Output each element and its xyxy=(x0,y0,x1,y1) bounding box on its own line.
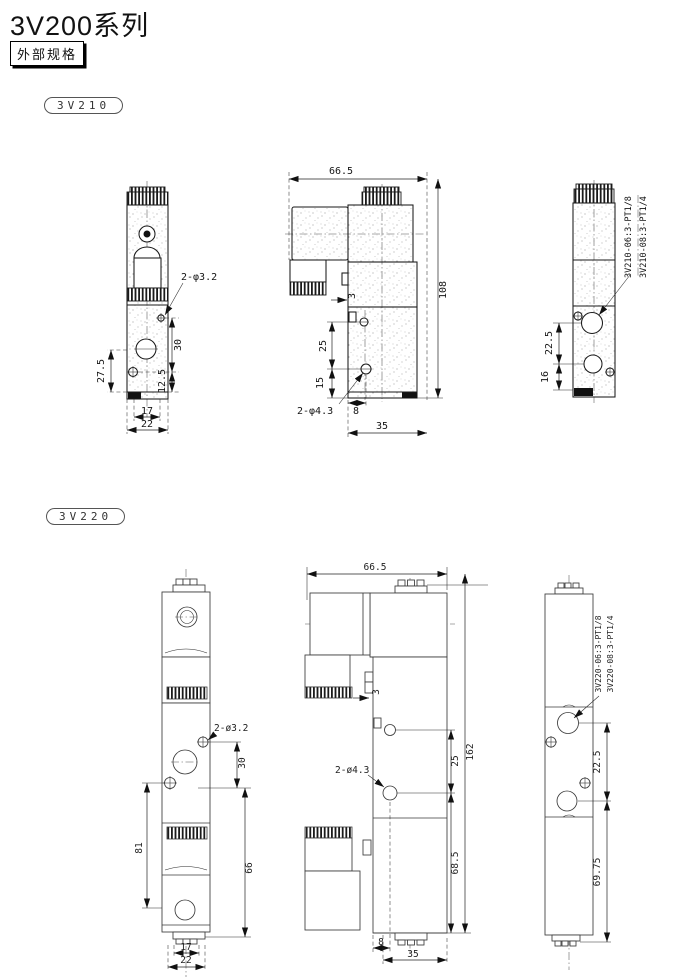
dim-66: 66 xyxy=(244,862,255,874)
dim-68-5: 68.5 xyxy=(450,852,461,875)
dim-35: 35 xyxy=(376,421,388,432)
dim-3: 3 xyxy=(371,689,382,695)
dim-25: 25 xyxy=(318,340,329,352)
dim-66-5: 66.5 xyxy=(364,562,387,573)
v220-back-view: 3V220-06:3-PT1/8 3V220-08:3-PT1/4 22.5 6… xyxy=(535,570,645,975)
port-spec-label-1: 3V210-06:3-PT1/8 xyxy=(624,196,634,278)
dim-8: 8 xyxy=(353,406,359,417)
dim-35: 35 xyxy=(407,949,418,960)
port-spec-label-2: 3V220-08:3-PT1/4 xyxy=(606,615,615,692)
dim-22: 22 xyxy=(180,955,191,966)
dim-66-5: 66.5 xyxy=(329,166,353,177)
v210-front-view: 2-φ3.2 30 12.5 27.5 17 22 xyxy=(95,175,230,440)
valve-outline xyxy=(162,569,210,977)
dim-16: 16 xyxy=(540,371,551,383)
valve-outline xyxy=(545,575,593,970)
hole-dim-label: 2-φ3.2 xyxy=(181,272,217,283)
dim-17: 17 xyxy=(141,406,153,417)
dim-108: 108 xyxy=(438,281,449,299)
section-label: 外部规格 xyxy=(10,41,84,66)
page-title: 3V200系列 xyxy=(10,4,149,43)
dim-25: 25 xyxy=(450,755,461,766)
port-spec-label-2: 3V210-08:3-PT1/4 xyxy=(639,196,649,278)
dim-22-5: 22.5 xyxy=(592,751,603,774)
dim-30: 30 xyxy=(173,339,184,351)
dim-162: 162 xyxy=(465,743,476,760)
v220-side-view: 66.5 3 25 68.5 162 2-ø4.3 8 35 xyxy=(295,560,490,979)
hole-dim-label: 2-φ4.3 xyxy=(297,406,333,417)
v210-side-view: 66.5 108 3 25 15 2-φ4.3 8 35 xyxy=(275,150,455,445)
dim-22-5: 22.5 xyxy=(544,331,555,355)
hole-dim-label: 2-ø3.2 xyxy=(214,723,248,734)
hole-dim-label: 2-ø4.3 xyxy=(335,765,369,776)
dim-3: 3 xyxy=(347,293,358,299)
dim-17: 17 xyxy=(180,942,191,953)
dim-12-5: 12.5 xyxy=(157,369,168,393)
dim-81: 81 xyxy=(134,842,145,854)
dim-27-5: 27.5 xyxy=(96,359,107,383)
valve-outline xyxy=(573,180,615,403)
dim-22: 22 xyxy=(141,419,153,430)
dim-15: 15 xyxy=(315,377,326,389)
dim-69-75: 69.75 xyxy=(592,858,603,887)
v220-front-view: 2-ø3.2 30 81 66 17 22 xyxy=(135,565,260,979)
model-badge-3v210: 3V210 xyxy=(44,97,123,114)
port-spec-label-1: 3V220-06:3-PT1/8 xyxy=(594,615,603,692)
catalog-page: 3V200系列 外部规格 3V210 3V220 2-φ3.2 xyxy=(0,0,680,979)
v210-back-view: 3V210-06:3-PT1/8 3V210-08:3-PT1/4 22.5 1… xyxy=(535,175,680,410)
dim-30: 30 xyxy=(237,757,248,769)
model-badge-3v220: 3V220 xyxy=(46,508,125,525)
